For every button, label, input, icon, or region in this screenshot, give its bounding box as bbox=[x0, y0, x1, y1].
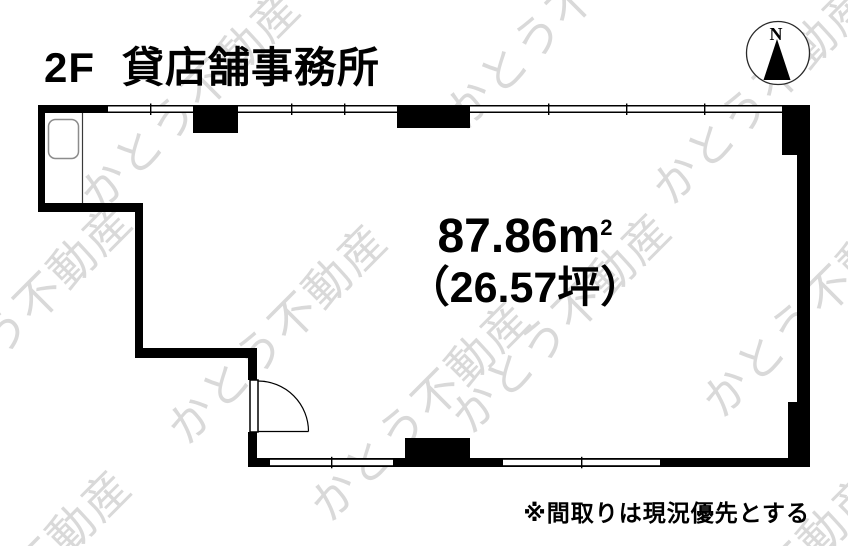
floorplan-page: かとう不動産 かとう不動産 かとう不動産 かとう不動産 かとう不動産 かとう不動… bbox=[0, 0, 848, 546]
window-mullion bbox=[548, 104, 549, 116]
window bbox=[238, 107, 397, 112]
window-mullion bbox=[150, 104, 151, 116]
wall-step-vertical bbox=[135, 203, 143, 358]
door-leaf bbox=[250, 380, 258, 432]
pillar-top-left bbox=[193, 105, 238, 133]
area-sqm-unit-sup: 2 bbox=[600, 215, 612, 240]
fixture bbox=[49, 120, 79, 159]
window-mullion bbox=[291, 104, 292, 116]
window-mullion bbox=[581, 457, 582, 469]
wall-left bbox=[38, 105, 45, 212]
window-mullion bbox=[344, 104, 345, 116]
pillar-bottom-center bbox=[405, 438, 470, 467]
wall-step-horizontal-upper bbox=[38, 203, 143, 212]
compass-north-label: N bbox=[770, 24, 783, 44]
floor-label: 2F bbox=[44, 44, 95, 91]
window-mullion bbox=[626, 104, 627, 116]
entrance-door bbox=[250, 380, 309, 432]
plan-usage-label: 貸店舗事務所 bbox=[122, 44, 380, 91]
area-sqm-unit: m bbox=[558, 210, 601, 263]
window-mullion bbox=[704, 104, 705, 116]
wall-step-horizontal-lower bbox=[135, 348, 257, 358]
plan-title: 2F貸店舗事務所 bbox=[44, 34, 380, 95]
wall-door-upper bbox=[248, 348, 257, 380]
area-tsubo-value: （26.57坪） bbox=[350, 264, 700, 312]
pillar-top-right-corner bbox=[782, 105, 810, 155]
pillar-bottom-right-corner bbox=[788, 402, 810, 467]
footer-note: ※間取りは現況優先とする bbox=[523, 494, 810, 528]
door-swing-arc bbox=[258, 381, 309, 432]
compass: N bbox=[747, 22, 810, 85]
pillar-top-center bbox=[397, 105, 470, 128]
window-mullion bbox=[331, 457, 332, 469]
area-sqm-value: 87.86 bbox=[437, 210, 557, 263]
area-sqm: 87.86m2 bbox=[350, 210, 700, 264]
room-area-label: 87.86m2 （26.57坪） bbox=[350, 210, 700, 312]
